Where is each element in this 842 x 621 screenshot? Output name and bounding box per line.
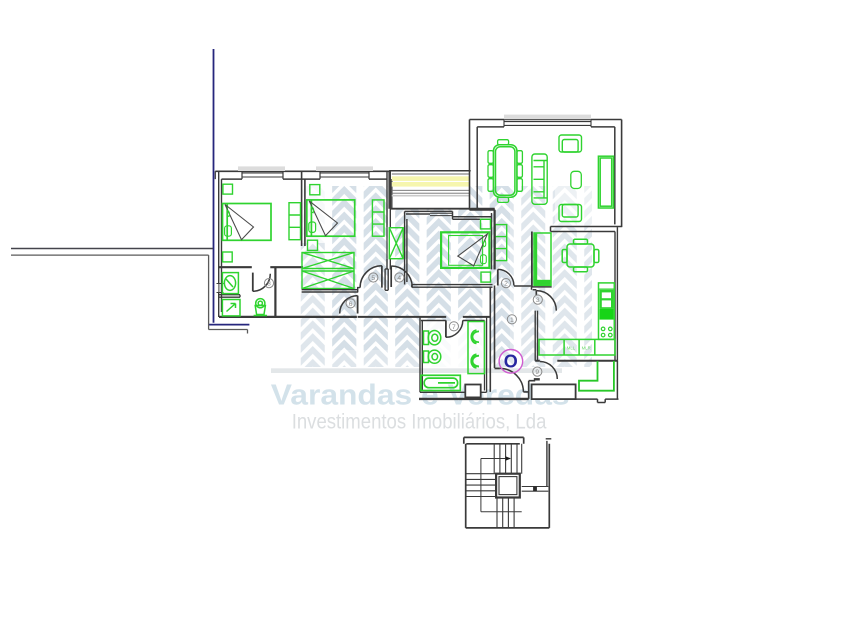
svg-text:MLL: MLL	[567, 345, 576, 350]
svg-text:9: 9	[535, 369, 539, 376]
svg-text:7: 7	[452, 324, 456, 331]
svg-text:Investimentos Imobiliários, Ld: Investimentos Imobiliários, Lda	[292, 410, 547, 434]
svg-text:MLR: MLR	[582, 345, 591, 350]
svg-text:1: 1	[510, 317, 514, 324]
svg-text:5: 5	[371, 275, 375, 282]
svg-text:2: 2	[504, 281, 508, 288]
svg-text:8: 8	[267, 281, 271, 288]
svg-text:4: 4	[397, 275, 401, 282]
svg-text:3: 3	[536, 297, 540, 304]
svg-text:O: O	[504, 352, 518, 372]
svg-text:6: 6	[349, 301, 353, 308]
